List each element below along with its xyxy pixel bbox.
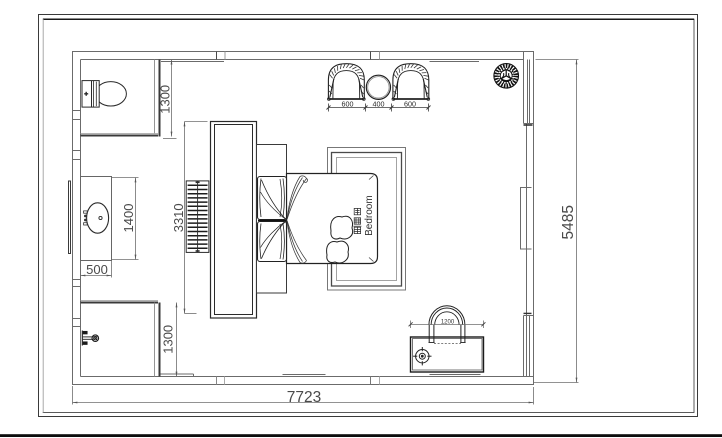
svg-text:3310: 3310 — [171, 203, 186, 232]
svg-text:500: 500 — [86, 262, 108, 277]
svg-text:600: 600 — [342, 99, 354, 108]
svg-text:Bedroom: Bedroom — [364, 195, 375, 236]
svg-text:600: 600 — [404, 99, 416, 108]
svg-text:400: 400 — [373, 99, 385, 108]
svg-text:7723: 7723 — [287, 389, 321, 406]
svg-text:1400: 1400 — [121, 204, 136, 233]
svg-text:5485: 5485 — [560, 205, 577, 239]
svg-text:1200: 1200 — [441, 320, 455, 326]
svg-text:1300: 1300 — [160, 325, 175, 354]
svg-text:1300: 1300 — [158, 85, 173, 114]
